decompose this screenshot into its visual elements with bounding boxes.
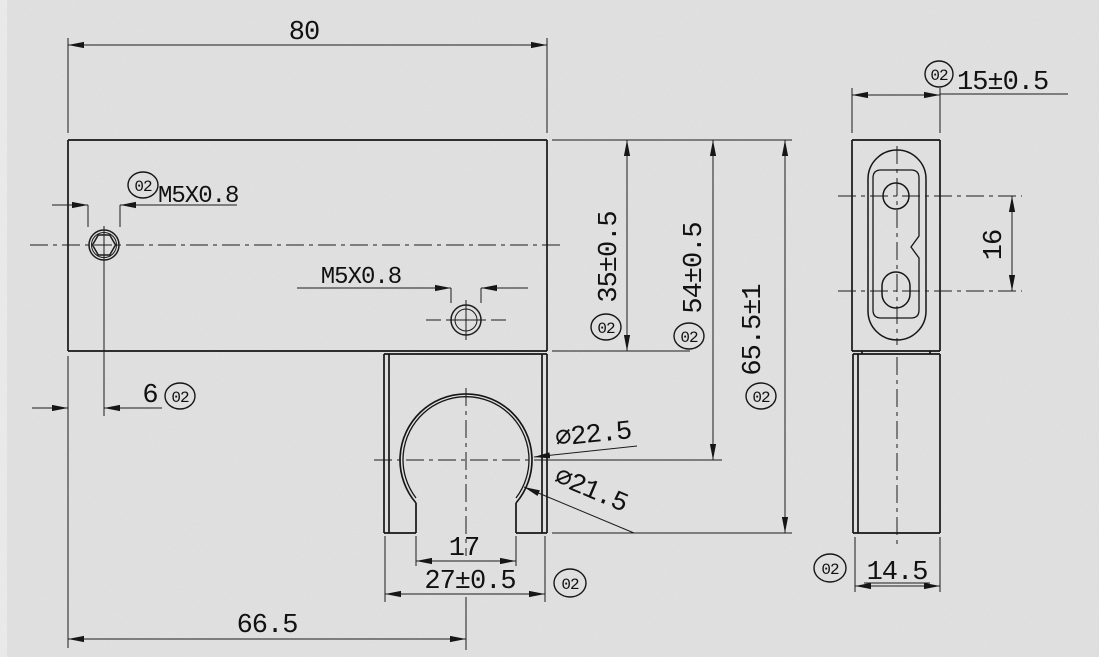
dim-edge-to-bore-label: 66.5 [237, 611, 298, 641]
badge-02-label: 02 [561, 576, 579, 594]
thread-middle-label: M5X0.8 [321, 264, 401, 291]
thread-left-label: M5X0.8 [158, 183, 238, 210]
dim-clamp-width-label: 27±0.5 [424, 567, 515, 597]
badge-02-label: 02 [134, 178, 152, 196]
badge-02-label: 02 [930, 67, 948, 85]
dim-slot-width-label: 17 [449, 534, 479, 564]
badge-02-label: 02 [171, 389, 189, 407]
dim-overall-height-label: 65.5±1 [739, 284, 769, 375]
dim-side-lower-width-label: 14.5 [867, 558, 928, 588]
dim-side-width-label: 15±0.5 [957, 68, 1048, 98]
dim-overall-width-label: 80 [289, 18, 319, 48]
badge-02-label: 02 [597, 320, 615, 338]
dim-hole-spacing-label: 16 [980, 230, 1010, 260]
dim-top-to-bore-label: 54±0.5 [680, 222, 710, 313]
paper-grain [0, 0, 1099, 657]
dim-block-height-label: 35±0.5 [595, 211, 625, 302]
badge-02-label: 02 [821, 561, 839, 579]
badge-02-label: 02 [680, 329, 698, 347]
cad-drawing: 80 02 M5X0.8 M5X0.8 6 02 [0, 0, 1099, 657]
screenshot-root: { "drawing": { "badge": "02", "colors": … [0, 0, 1099, 657]
badge-02-label: 02 [752, 389, 770, 407]
dim-edge-to-thread-label: 6 [142, 381, 157, 411]
